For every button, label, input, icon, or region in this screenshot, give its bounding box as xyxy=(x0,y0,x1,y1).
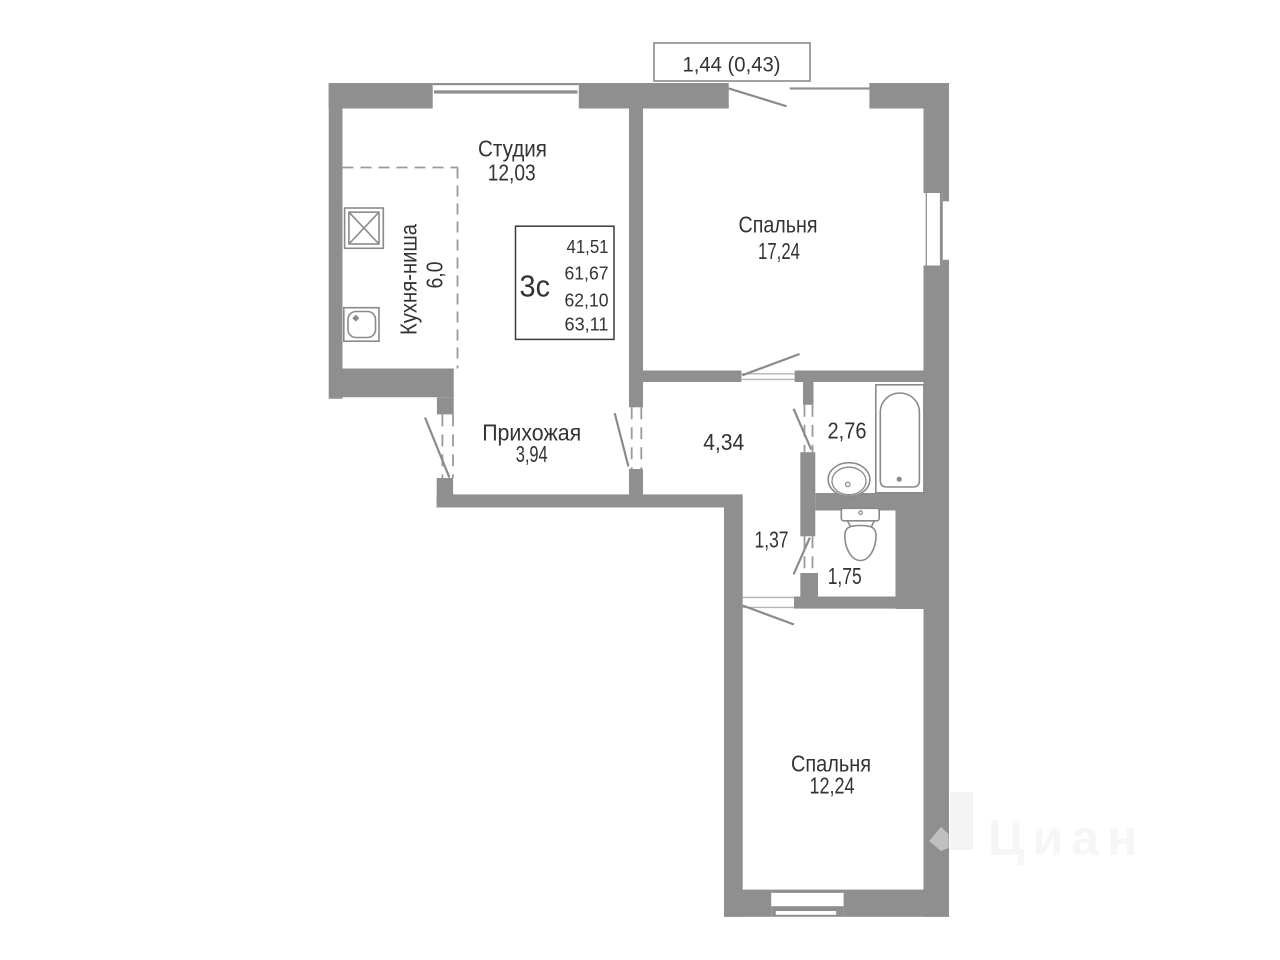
svg-text:2,76: 2,76 xyxy=(828,418,867,444)
svg-text:Циан: Циан xyxy=(988,810,1145,866)
svg-text:Студия: Студия xyxy=(478,136,547,162)
svg-text:17,24: 17,24 xyxy=(758,238,800,264)
svg-text:4,34: 4,34 xyxy=(703,429,744,455)
svg-text:41,51: 41,51 xyxy=(567,236,609,257)
svg-text:61,67: 61,67 xyxy=(565,263,609,284)
svg-text:1,75: 1,75 xyxy=(828,563,862,589)
svg-text:1,37: 1,37 xyxy=(755,527,789,553)
svg-text:3с: 3с xyxy=(520,269,551,304)
svg-text:3,94: 3,94 xyxy=(516,441,548,467)
svg-text:1,44 (0,43): 1,44 (0,43) xyxy=(683,53,781,76)
svg-text:12,03: 12,03 xyxy=(488,159,536,185)
svg-text:12,24: 12,24 xyxy=(810,773,855,799)
svg-text:6,0: 6,0 xyxy=(421,262,447,289)
svg-text:62,10: 62,10 xyxy=(565,289,609,310)
svg-text:Кухня-ниша: Кухня-ниша xyxy=(395,224,421,335)
svg-text:Спальня: Спальня xyxy=(739,211,818,237)
svg-text:63,11: 63,11 xyxy=(565,313,609,334)
